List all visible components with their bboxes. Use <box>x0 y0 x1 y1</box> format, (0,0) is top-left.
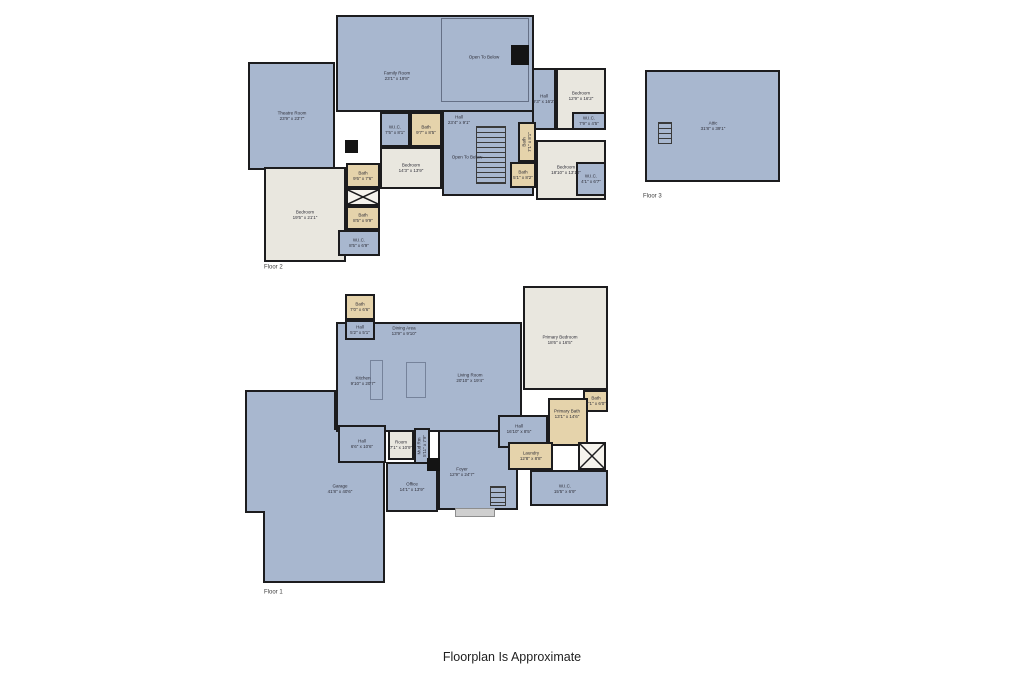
laundry <box>508 442 553 470</box>
crossed-area-icon <box>348 190 378 204</box>
wic-1 <box>338 230 380 256</box>
garage-lower <box>263 513 385 583</box>
chimney-block <box>511 45 529 65</box>
closet-cross-f1 <box>578 442 606 470</box>
bath-1 <box>346 163 380 188</box>
bath-4 <box>518 122 536 162</box>
wic-5 <box>530 470 608 506</box>
stairs-f2 <box>476 126 506 184</box>
attic-stairs <box>658 122 672 144</box>
wic-right-top <box>572 112 606 130</box>
kitchen-island <box>406 362 426 398</box>
closet-cross-f2 <box>346 188 380 206</box>
kitchen-counter <box>370 360 383 400</box>
hall-5 <box>338 425 386 463</box>
floor-3-caption: Floor 3 <box>643 192 662 199</box>
garage-seam-2 <box>265 509 383 517</box>
stairs-f1 <box>490 486 506 506</box>
bedroom-center <box>380 147 442 189</box>
garage-upper <box>245 390 336 430</box>
primary-bath <box>548 398 588 446</box>
theatre-room <box>248 62 335 170</box>
footer-disclaimer: Floorplan Is Approximate <box>0 650 1024 664</box>
wic-2 <box>380 112 410 147</box>
bath-3 <box>410 112 442 147</box>
fireplace-block <box>345 140 358 153</box>
garage-seam-1 <box>247 426 334 432</box>
primary-bedroom <box>523 286 608 390</box>
hall-small <box>345 320 375 340</box>
bath-5 <box>510 162 536 188</box>
room <box>388 430 414 460</box>
bedroom-left <box>264 167 346 262</box>
hall-right <box>532 68 556 130</box>
floor-2-caption: Floor 2 <box>264 263 283 270</box>
bath-6 <box>345 294 375 320</box>
entry-block <box>427 458 440 471</box>
wic-right-bottom <box>576 162 606 196</box>
bath-2 <box>346 206 380 230</box>
floorplan-canvas: Garage41'8" x 40'6"Kitchen9'10" x 20'7"D… <box>0 0 1024 682</box>
entry-steps <box>455 508 495 517</box>
crossed-area-icon <box>580 444 604 468</box>
floor-1-caption: Floor 1 <box>264 588 283 595</box>
